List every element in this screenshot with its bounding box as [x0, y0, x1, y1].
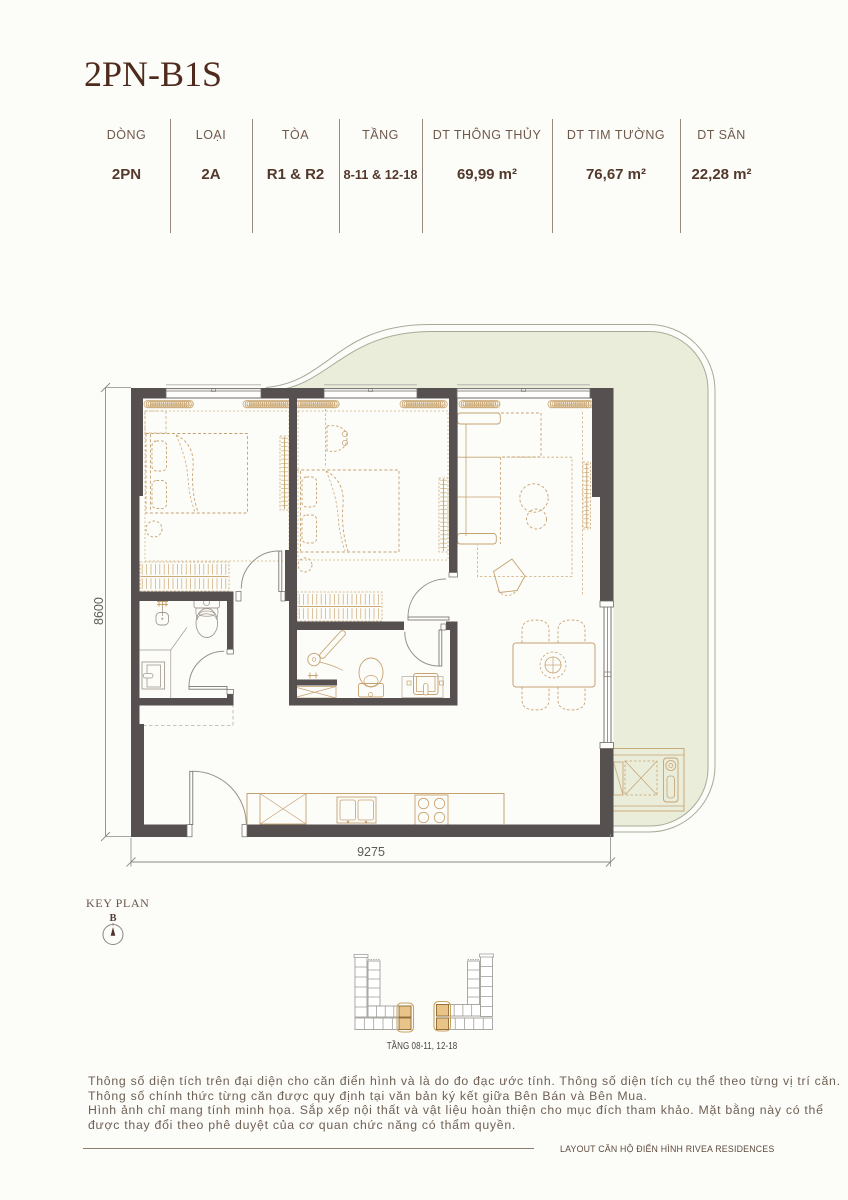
svg-text:9275: 9275	[357, 845, 385, 859]
svg-text:8600: 8600	[92, 597, 106, 625]
